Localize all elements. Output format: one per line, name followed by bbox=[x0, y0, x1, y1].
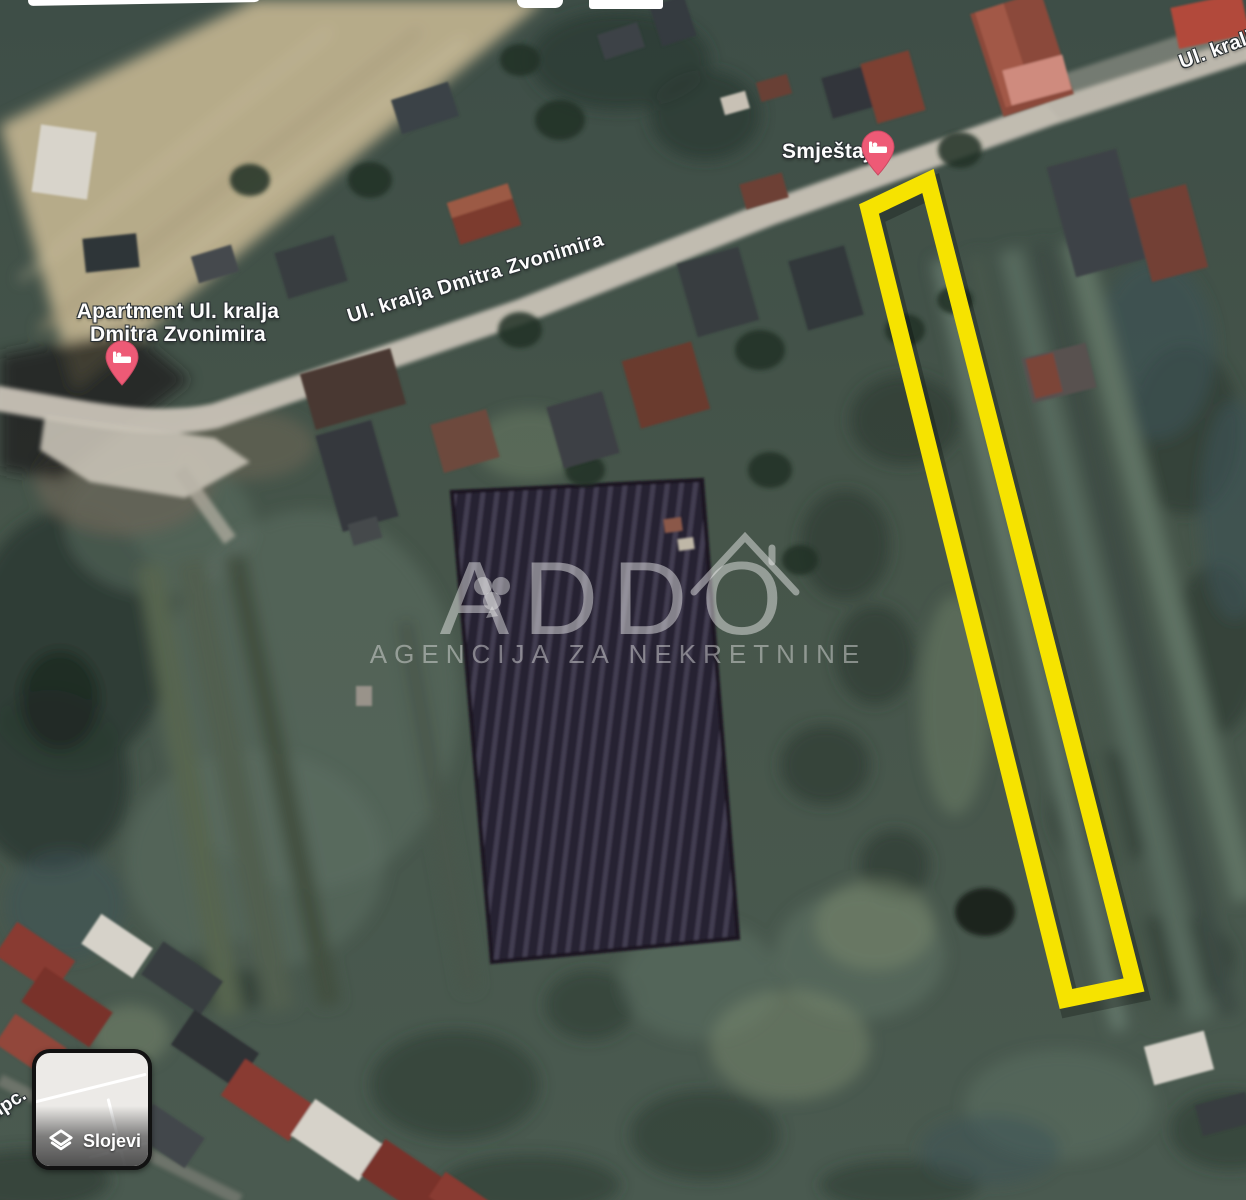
poi-label-smjestaj[interactable]: Smještaj bbox=[782, 140, 870, 164]
layers-button-label: Slojevi bbox=[83, 1131, 141, 1152]
cutoff-ui-fragment bbox=[589, 0, 663, 9]
map-preview-street bbox=[32, 1073, 147, 1104]
cutoff-ui-fragment bbox=[517, 0, 563, 8]
apartment-label-line1: Apartment Ul. kralja bbox=[70, 300, 286, 323]
lodging-pin-icon[interactable] bbox=[104, 340, 140, 386]
apartment-label-line2: Dmitra Zvonimira bbox=[70, 323, 286, 346]
layers-button[interactable]: Slojevi bbox=[32, 1049, 152, 1170]
lodging-pin-icon[interactable] bbox=[860, 130, 896, 176]
layers-icon bbox=[48, 1128, 74, 1154]
poi-label-apartment[interactable]: Apartment Ul. kralja Dmitra Zvonimira bbox=[70, 300, 286, 346]
satellite-map[interactable] bbox=[0, 0, 1246, 1200]
map-viewport: LAY OFF JDOO ZA PROIZVODNJU I… Apartment… bbox=[0, 0, 1246, 1200]
layers-button-gradient: Slojevi bbox=[36, 1106, 148, 1166]
